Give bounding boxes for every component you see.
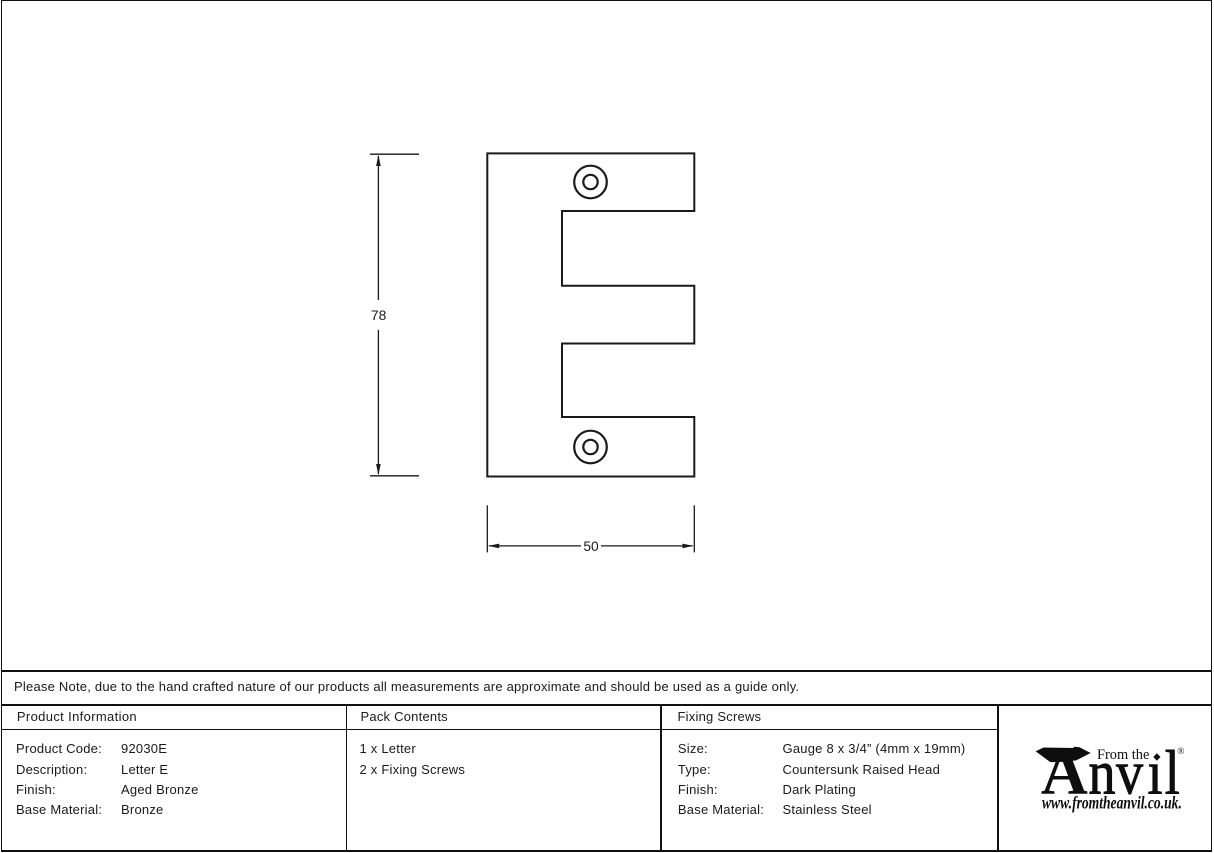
svg-text:From the: From the	[1097, 747, 1149, 763]
svg-text:78: 78	[371, 308, 387, 323]
svg-text:www.fromtheanvil.co.uk.: www.fromtheanvil.co.uk.	[1042, 794, 1182, 813]
svg-text:®: ®	[1177, 746, 1184, 757]
svg-text:50: 50	[583, 539, 599, 554]
